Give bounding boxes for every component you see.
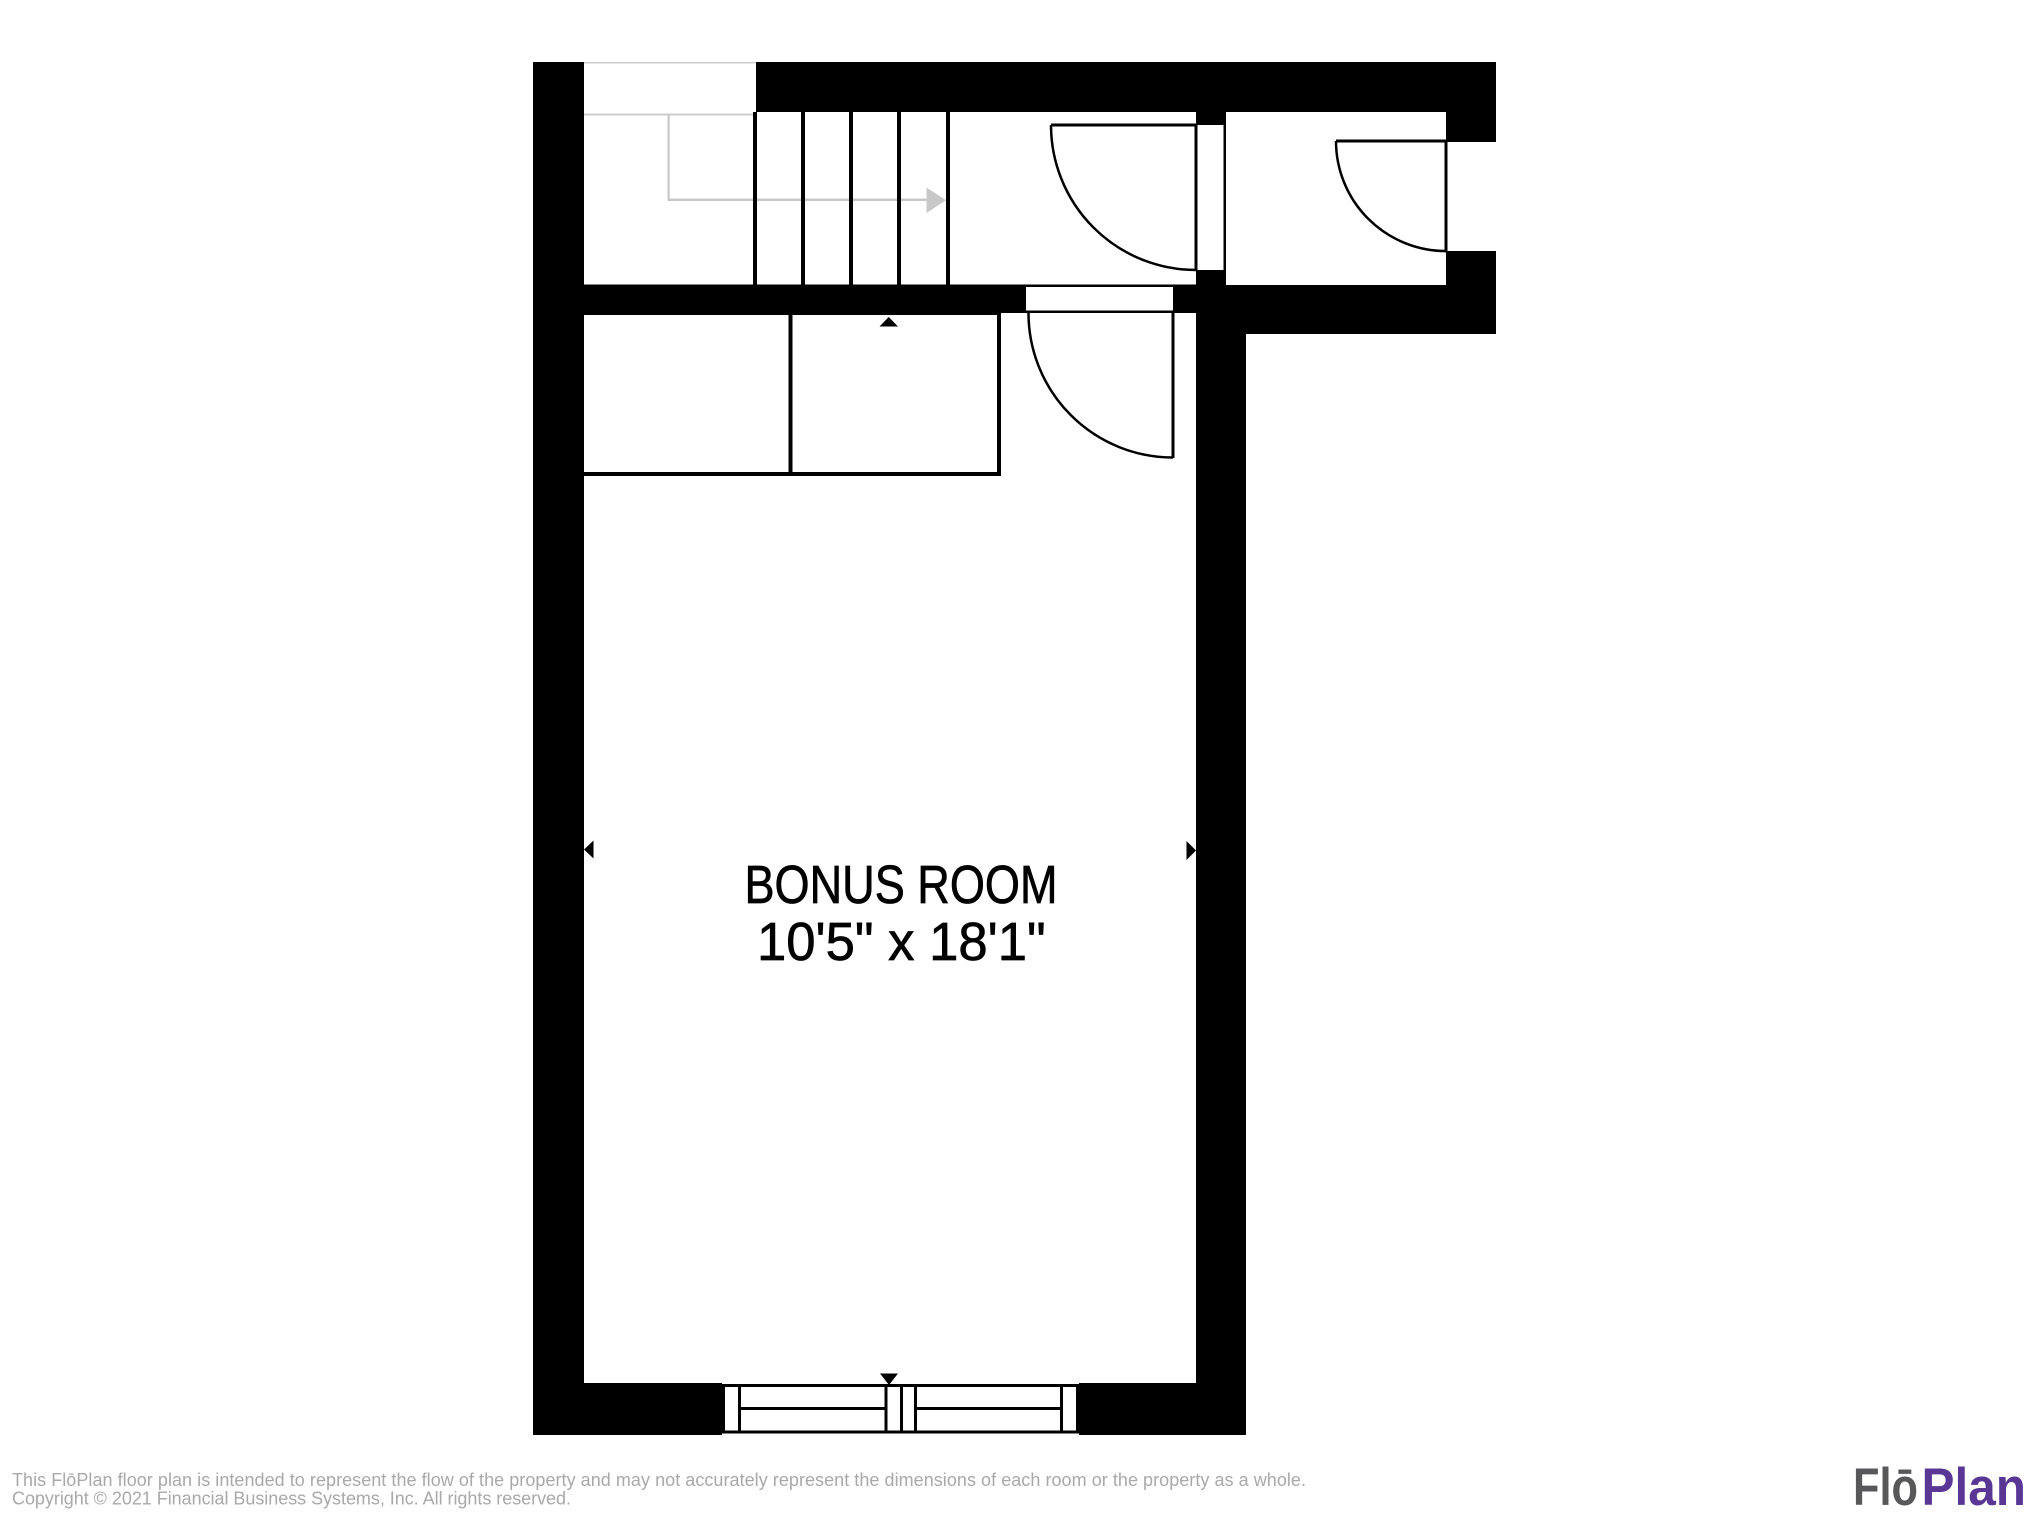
svg-text:This FlōPlan floor plan is int: This FlōPlan floor plan is intended to r… xyxy=(12,1470,1306,1490)
svg-text:Plan: Plan xyxy=(1922,1458,2027,1517)
svg-text:Flō: Flō xyxy=(1853,1458,1918,1517)
svg-text:BONUS ROOM: BONUS ROOM xyxy=(745,856,1058,915)
svg-text:10'5" x 18'1": 10'5" x 18'1" xyxy=(757,913,1046,972)
svg-text:Copyright © 2021 Financial Bus: Copyright © 2021 Financial Business Syst… xyxy=(12,1489,571,1509)
